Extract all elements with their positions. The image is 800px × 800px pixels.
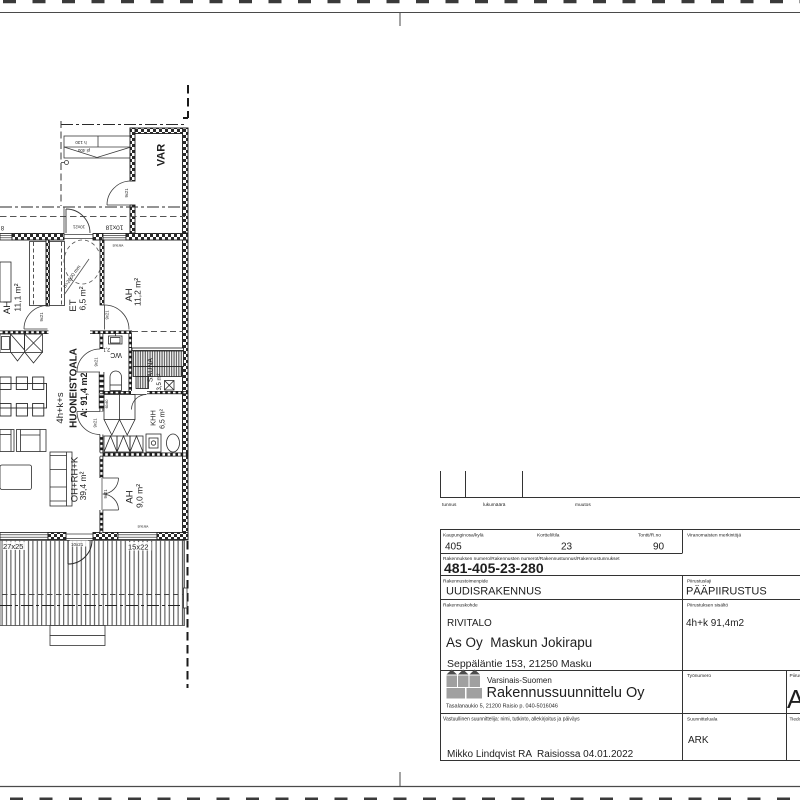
svg-text:VAR: VAR (156, 144, 168, 166)
svg-text:9x21: 9x21 (39, 312, 44, 322)
svg-text:39,4 m²: 39,4 m² (78, 471, 88, 500)
svg-text:varaus: varaus (112, 244, 123, 248)
svg-text:WC: WC (110, 351, 122, 358)
svg-text:6,5 m²: 6,5 m² (78, 286, 88, 310)
svg-text:lukumäärä: lukumäärä (483, 502, 506, 508)
svg-text:PÄÄPIIRUSTUS: PÄÄPIIRUSTUS (686, 586, 767, 598)
svg-text:60x60: 60x60 (105, 399, 109, 408)
svg-text:15x22: 15x22 (128, 543, 148, 552)
svg-text:AH: AH (2, 301, 13, 314)
svg-text:90: 90 (653, 542, 665, 553)
svg-text:Rakennustoimenpide: Rakennustoimenpide (443, 579, 488, 585)
svg-text:2,1: 2,1 (103, 346, 110, 352)
svg-text:Mikko Lindqvist RA Raisiossa: Mikko Lindqvist RA Raisiossa 04.01.2022 (447, 749, 634, 760)
svg-text:Piirustuslaji: Piirustuslaji (687, 579, 711, 585)
svg-text:481-405-23-280: 481-405-23-280 (444, 560, 544, 576)
svg-text:6,5 m²: 6,5 m² (160, 408, 167, 429)
svg-text:Seppäläntie 153, 21250 Masku: Seppäläntie 153, 21250 Masku (447, 658, 592, 670)
svg-text:Piirustuksen numero: Piirustuksen numero (790, 673, 800, 679)
svg-text:h 130: h 130 (75, 140, 87, 145)
svg-text:4h+k 91,4m2: 4h+k 91,4m2 (686, 618, 745, 629)
svg-text:Rakennussuunnittelu Oy: Rakennussuunnittelu Oy (487, 685, 646, 701)
svg-text:4h+k+s: 4h+k+s (55, 392, 66, 423)
svg-text:pl 400: pl 400 (77, 148, 90, 153)
svg-text:Vastuullinen suunnittelija: ni: Vastuullinen suunnittelija: nimi, tutkin… (443, 717, 580, 723)
svg-text:tunnus: tunnus (442, 502, 457, 508)
svg-text:9x21: 9x21 (105, 310, 110, 320)
svg-text:Tontti/R.no: Tontti/R.no (638, 533, 661, 539)
svg-text:Viranomaisten merkintöjä: Viranomaisten merkintöjä (687, 533, 741, 539)
svg-text:A: 91,4 m2: A: 91,4 m2 (79, 372, 89, 417)
svg-text:11,2 m²: 11,2 m² (133, 278, 143, 306)
svg-text:405: 405 (445, 542, 462, 553)
svg-text:SAUNA: SAUNA (148, 358, 155, 382)
svg-text:27x25: 27x25 (3, 542, 23, 551)
svg-text:23: 23 (561, 542, 573, 553)
svg-text:10x21: 10x21 (72, 225, 85, 230)
svg-text:Työnumero: Työnumero (687, 673, 711, 679)
svg-text:Rakennuskohde: Rakennuskohde (443, 603, 478, 609)
svg-text:HUONEISTOALA: HUONEISTOALA (69, 348, 80, 428)
svg-text:Tasalanaukio 5, 21200 Raisio p: Tasalanaukio 5, 21200 Raisio p. 040-5016… (446, 704, 558, 710)
svg-text:9x21: 9x21 (93, 357, 98, 367)
svg-text:muutos: muutos (575, 502, 591, 508)
svg-text:KHH: KHH (149, 410, 158, 426)
svg-text:UUDISRAKENNUS: UUDISRAKENNUS (446, 586, 541, 598)
svg-text:9x21: 9x21 (93, 418, 98, 428)
svg-text:Tiedosto: Tiedosto (790, 717, 800, 723)
svg-text:9x21: 9x21 (124, 188, 129, 198)
svg-text:Kortteli/tila: Kortteli/tila (537, 533, 560, 539)
svg-text:10x21: 10x21 (71, 542, 84, 547)
svg-text:RIVITALO: RIVITALO (447, 618, 492, 629)
svg-text:Kaupunginosa/kylä: Kaupunginosa/kylä (443, 533, 484, 539)
svg-text:varaus: varaus (137, 525, 148, 529)
svg-text:A: A (787, 684, 800, 714)
svg-text:9,0 m²: 9,0 m² (135, 484, 145, 508)
svg-text:3,5 m²: 3,5 m² (157, 373, 163, 390)
svg-text:As Oy Maskun Jokirapu: As Oy Maskun Jokirapu (446, 635, 592, 650)
svg-text:9x21: 9x21 (103, 489, 108, 499)
svg-text:11,1 m²: 11,1 m² (13, 283, 23, 311)
svg-text:10x18: 10x18 (105, 224, 123, 231)
svg-text:ARK: ARK (688, 735, 709, 746)
svg-text:Suunnitteluala: Suunnitteluala (687, 717, 718, 723)
svg-text:Piirustuksen sisältö: Piirustuksen sisältö (687, 603, 728, 609)
svg-text:Varsinais-Suomen: Varsinais-Suomen (487, 676, 552, 685)
